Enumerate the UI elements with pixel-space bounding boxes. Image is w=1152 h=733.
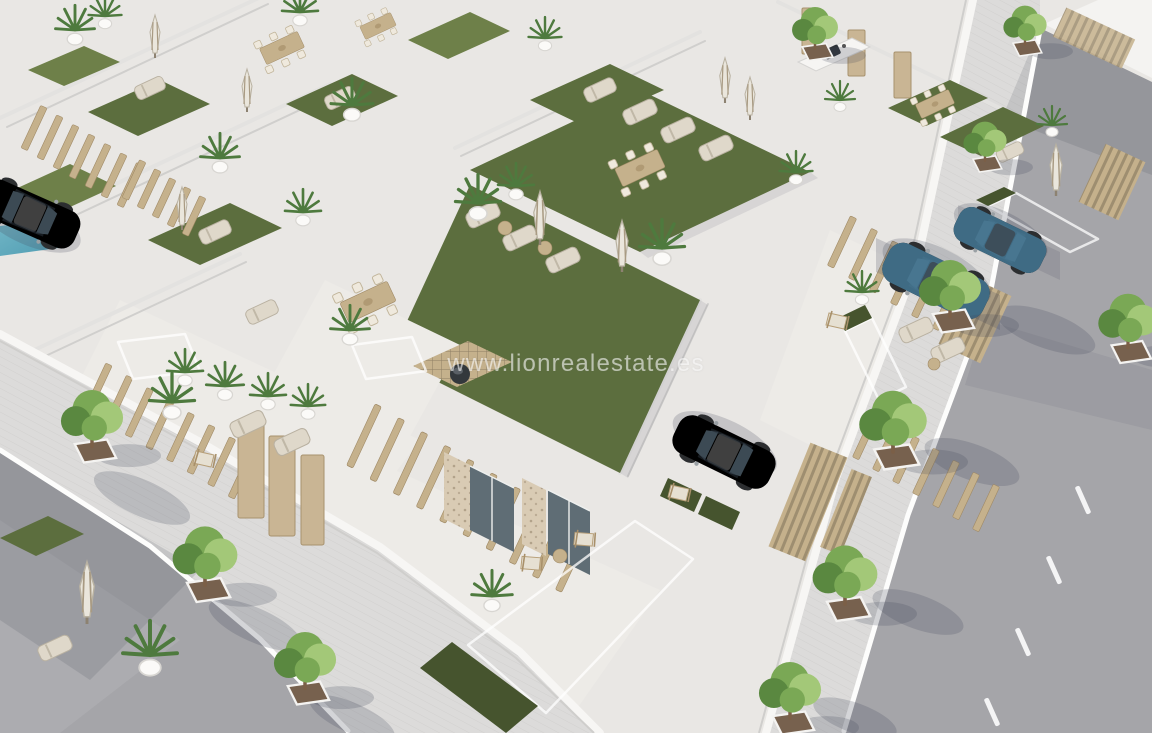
scene-illustration [0, 0, 1152, 733]
timber-door [301, 455, 324, 545]
stone-cladding [444, 452, 470, 532]
render-scene: www.lionrealestate.es [0, 0, 1152, 733]
stone-cladding [522, 478, 546, 556]
